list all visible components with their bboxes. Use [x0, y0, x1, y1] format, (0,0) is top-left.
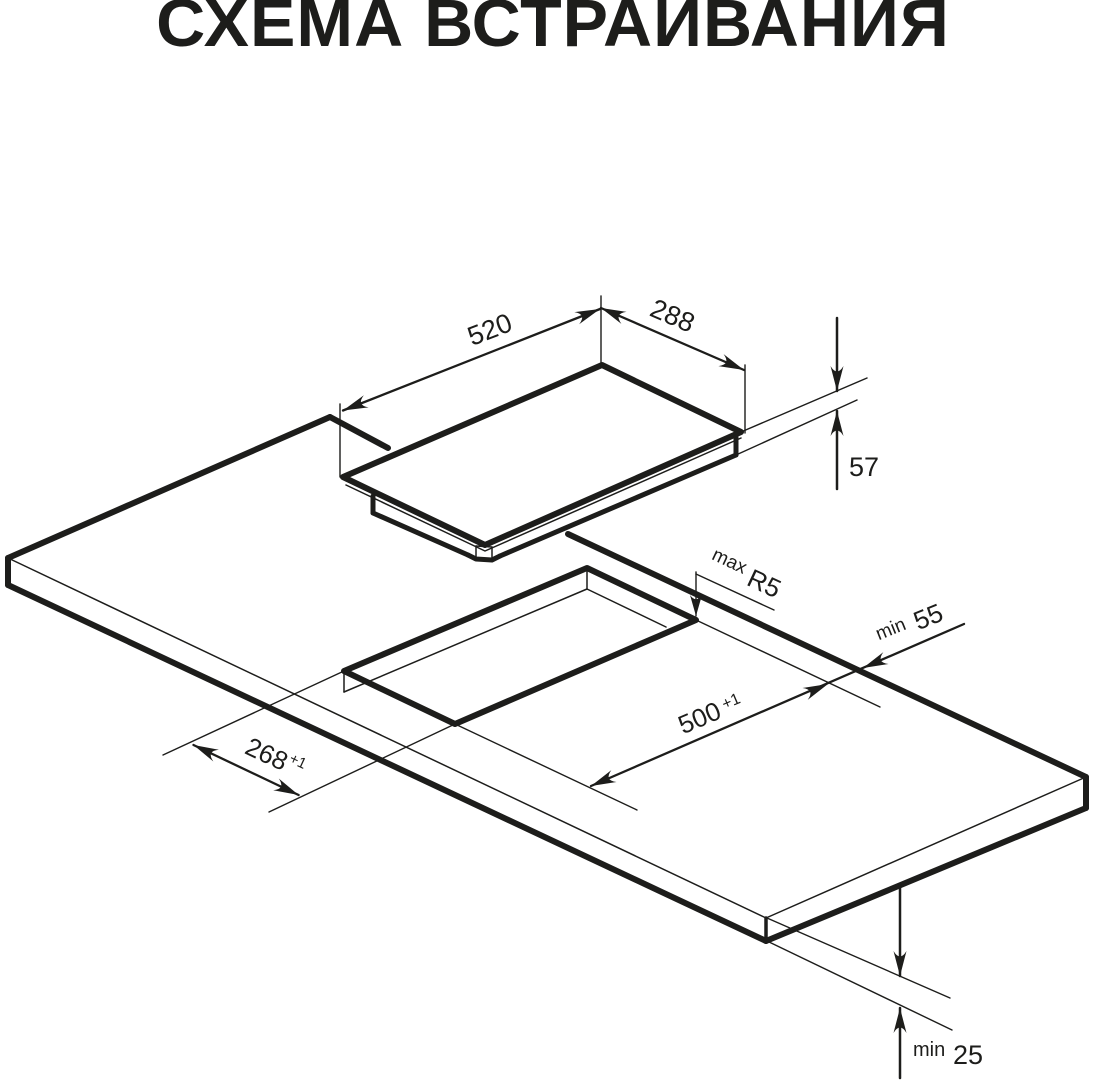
svg-text:268: 268 [241, 731, 293, 777]
svg-text:R5: R5 [743, 563, 786, 604]
svg-text:500: 500 [674, 695, 726, 740]
svg-text:+1: +1 [720, 690, 744, 713]
svg-text:57: 57 [849, 452, 879, 482]
svg-text:55: 55 [909, 597, 947, 636]
svg-text:max: max [709, 544, 751, 578]
svg-text:min: min [873, 614, 909, 645]
svg-text:min: min [913, 1039, 945, 1061]
svg-text:25: 25 [953, 1040, 983, 1070]
